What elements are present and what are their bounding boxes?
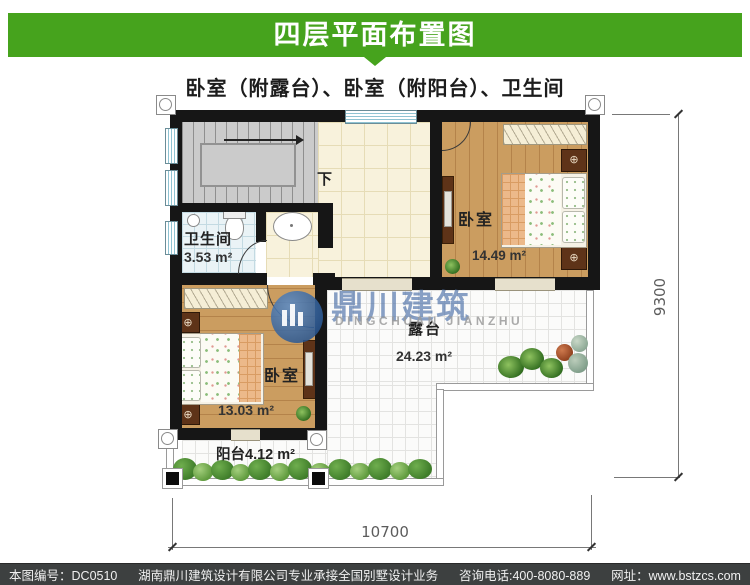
wall-sink-nook <box>318 203 333 248</box>
wall-bathroom-right <box>256 212 266 242</box>
tv-right <box>444 191 452 227</box>
shower-head <box>187 214 200 227</box>
wall-bathroom-south <box>170 273 267 285</box>
dim-line-right <box>678 114 679 478</box>
window-bathroom <box>165 221 178 255</box>
balcony-area: 4.12 m² <box>245 447 295 463</box>
door-bedroom-balcony <box>231 429 260 441</box>
hedge-bush <box>368 458 392 480</box>
window-stairs-2 <box>165 170 178 206</box>
room-label-bedroom-left: 卧室 <box>264 362 300 386</box>
hedge-bush <box>390 462 410 480</box>
watermark-logo-bar <box>290 304 295 326</box>
dim-tick <box>674 472 683 481</box>
column-marker-top-left <box>156 95 176 115</box>
balcony-name: 阳台 <box>216 447 245 463</box>
wall-bedroom-left-left <box>170 285 182 440</box>
parapet-terrace-step <box>436 383 594 391</box>
column-marker-top-right <box>585 95 605 115</box>
potted-plant-icon <box>445 259 460 274</box>
footer-phone: 咨询电话:400-8080-889 <box>459 565 590 584</box>
hedge-bush <box>408 459 432 479</box>
window-stairs-1 <box>165 128 178 164</box>
wardrobe-bedroom-right <box>503 124 587 145</box>
parapet-terrace-lower-right <box>436 389 444 481</box>
bed-mattress <box>201 334 239 402</box>
bed-bedroom-left <box>176 333 264 405</box>
room-label-bedroom-right: 卧室 <box>458 206 494 230</box>
nightstand-knob-icon: ⊕ <box>569 252 578 264</box>
toilet-tank <box>223 211 246 219</box>
dim-ext-left <box>172 498 173 550</box>
stairs-down-label: 下 <box>317 168 332 189</box>
dim-ext-top-right <box>612 114 670 115</box>
round-plant <box>571 335 588 352</box>
area-label-bedroom-left: 13.03 m² <box>218 402 274 418</box>
dim-label-right: 9300 <box>651 267 669 327</box>
stair-arrow-head-icon <box>296 135 304 145</box>
footer-website: 网址：www.bstzcs.com <box>611 565 741 584</box>
watermark-logo-bar <box>298 312 303 326</box>
stair-handrail <box>200 143 296 187</box>
plan-subtitle: 卧室（附露台）、卧室（附阳台）、卫生间 <box>0 72 750 101</box>
nightstand-right-2: ⊕ <box>561 247 587 270</box>
footer-company: 湖南鼎川建筑设计有限公司专业承接全国别墅设计业务 <box>138 565 438 584</box>
pillow <box>562 211 585 243</box>
bed-blanket <box>502 174 525 245</box>
bed-blanket <box>239 334 261 402</box>
watermark-company-en: DINGCHUAN JIANZHU <box>335 314 523 328</box>
bed-mattress <box>525 174 561 245</box>
pillow <box>562 177 585 209</box>
terrace-plant <box>540 358 563 378</box>
wall-stairs-bath-divider <box>170 203 333 212</box>
window-hall-north <box>345 110 417 124</box>
stair-direction-arrow <box>224 139 296 141</box>
pillow <box>179 337 201 368</box>
page-title: 四层平面布置图 <box>8 13 742 57</box>
wall-right <box>588 110 600 290</box>
watermark-logo-bar <box>282 310 287 326</box>
hedge-bush <box>350 463 370 480</box>
area-label-bedroom-right: 14.49 m² <box>472 248 526 263</box>
room-label-bathroom: 卫生间 <box>184 228 232 249</box>
watermark-logo-icon <box>271 291 323 343</box>
balcony-column-left <box>163 469 182 488</box>
wall-bedroom-right-left <box>430 122 442 277</box>
column-marker-bottom-mid <box>307 430 327 450</box>
hedge-bush <box>328 459 352 480</box>
hedge-bush <box>193 463 213 481</box>
dim-line-bottom <box>168 547 596 548</box>
round-plant <box>568 353 588 373</box>
bed-bedroom-right <box>501 173 587 248</box>
potted-plant-icon <box>296 406 311 421</box>
nightstand-knob-icon: ⊕ <box>183 317 192 329</box>
pillow <box>179 370 201 401</box>
nightstand-knob-icon: ⊕ <box>183 409 192 421</box>
hedge-bush <box>231 464 250 481</box>
nightstand-right-1: ⊕ <box>561 149 587 172</box>
wardrobe-bedroom-left <box>184 288 268 309</box>
tv-left <box>305 352 313 386</box>
dim-ext-bottom-right <box>614 477 680 478</box>
banner-pointer-icon <box>364 57 386 66</box>
drawing-number: 本图编号：DC0510 <box>9 565 117 584</box>
balcony-column-right <box>309 469 328 488</box>
dim-ext-right <box>591 495 592 550</box>
footer-bar: 本图编号：DC0510 湖南鼎川建筑设计有限公司专业承接全国别墅设计业务 咨询电… <box>0 563 750 585</box>
drawing-number-label: 本图编号： <box>9 569 72 583</box>
nightstand-knob-icon: ⊕ <box>569 154 578 166</box>
drawing-number-value: DC0510 <box>72 569 118 583</box>
title-banner: 四层平面布置图 <box>8 13 742 57</box>
sink-drain <box>290 224 293 227</box>
sliding-door-bedroom-terrace <box>495 278 555 291</box>
area-label-terrace: 24.23 m² <box>396 348 452 364</box>
column-marker-bottom-left <box>158 429 178 449</box>
room-label-balcony: 阳台4.12 m² <box>216 443 295 464</box>
hallway-floor <box>318 122 430 277</box>
hedge-bush <box>270 463 290 481</box>
area-label-bathroom: 3.53 m² <box>184 249 232 265</box>
dim-label-bottom: 10700 <box>340 523 430 541</box>
